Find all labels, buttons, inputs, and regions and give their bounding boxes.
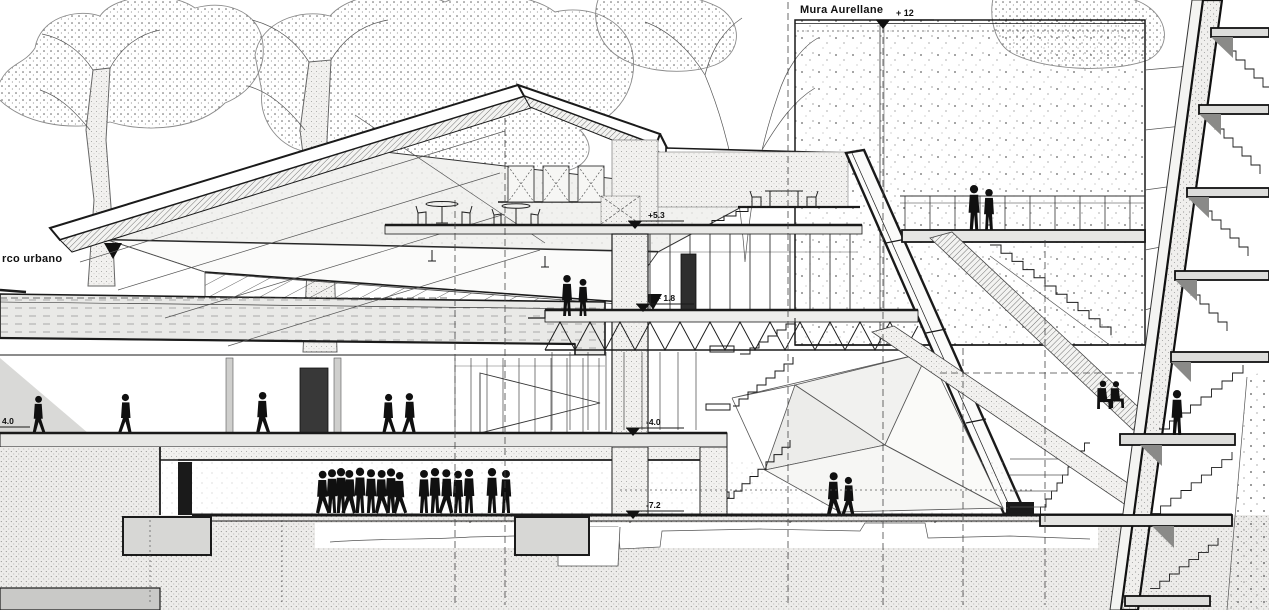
archaeological-trench: [315, 523, 1098, 548]
door-leaf: [681, 254, 696, 310]
svg-text:+5.3: +5.3: [648, 210, 665, 220]
park-label: rco urbano: [2, 253, 62, 265]
under-balcony-wall: [700, 447, 727, 515]
back-wall: [658, 152, 848, 207]
concrete-pier: [612, 234, 648, 433]
svg-text:-7.2: -7.2: [646, 500, 661, 510]
tree-canopy: [0, 0, 263, 128]
architectural-section-drawing: Mura Aurellane rco urbano + 12 +5.3 + 1.…: [0, 0, 1269, 610]
section-canvas: Mura Aurellane rco urbano + 12 +5.3 + 1.…: [0, 0, 1269, 610]
upper-terrace-slab: [385, 225, 862, 234]
foundation-block: [515, 517, 589, 555]
svg-text:+ 1.8: + 1.8: [656, 293, 675, 303]
gallery-floor-slab: [0, 433, 727, 447]
soil-cut: [0, 588, 160, 610]
wall-name-label: Mura Aurellane: [800, 4, 883, 16]
cut-column: [178, 462, 192, 515]
ground-beyond: [1227, 370, 1269, 610]
svg-text:+ 12: + 12: [896, 8, 914, 18]
upper-doors: [498, 166, 614, 202]
tower-standing-figure: [1172, 390, 1183, 435]
svg-text:4.0: 4.0: [2, 416, 14, 426]
pier-base: [612, 447, 648, 515]
svg-text:-4.0: -4.0: [646, 417, 661, 427]
foundation-block: [123, 517, 211, 555]
